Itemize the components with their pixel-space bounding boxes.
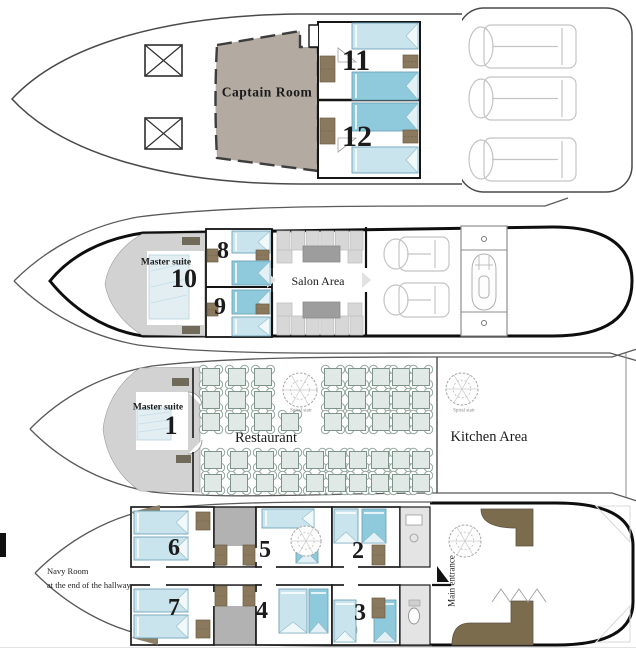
cabin-9-label: 9 bbox=[214, 295, 226, 319]
salon-seat bbox=[348, 303, 362, 316]
deck-hatch-icon bbox=[145, 118, 182, 149]
restaurant-table bbox=[201, 471, 224, 494]
table-top bbox=[229, 414, 246, 431]
bed bbox=[279, 589, 307, 633]
table-top bbox=[373, 392, 390, 409]
master-suite-upper-chip bbox=[182, 237, 200, 245]
salon-seat bbox=[350, 316, 363, 335]
table-top bbox=[349, 369, 366, 386]
table-top bbox=[373, 369, 390, 386]
table-top bbox=[203, 414, 220, 431]
table-top bbox=[393, 475, 410, 492]
cabin-block-step bbox=[309, 25, 318, 47]
restaurant-table bbox=[303, 448, 326, 471]
cabin-12-label: 12 bbox=[342, 122, 372, 152]
restaurant-table bbox=[345, 410, 368, 433]
salon-seat bbox=[306, 316, 319, 335]
captain-room-label: Captain Room bbox=[222, 85, 312, 99]
table-top bbox=[282, 452, 299, 469]
table-top bbox=[257, 475, 274, 492]
salon-table bbox=[303, 246, 340, 262]
cabin-1-label: 1 bbox=[165, 413, 178, 439]
table-top bbox=[255, 414, 272, 431]
restaurant-table bbox=[201, 448, 224, 471]
restaurant-table bbox=[253, 448, 276, 471]
cabin-2-label: 2 bbox=[352, 539, 364, 563]
master-suite-upper-chip bbox=[182, 326, 200, 334]
restaurant-table bbox=[225, 365, 248, 388]
restaurant-table bbox=[225, 388, 248, 411]
cabin-8-label: 8 bbox=[217, 239, 229, 263]
restaurant-table bbox=[227, 471, 250, 494]
yacht-deck-plan: Captain Room 11 12 Master suite 10 8 9 S… bbox=[0, 0, 636, 648]
table-top bbox=[205, 475, 222, 492]
cabin-3-label: 3 bbox=[354, 601, 366, 625]
bow-marker bbox=[0, 533, 6, 557]
table-top bbox=[350, 452, 367, 469]
restaurant-table bbox=[346, 471, 369, 494]
restaurant-table bbox=[409, 365, 432, 388]
table-top bbox=[255, 369, 272, 386]
bed bbox=[262, 509, 314, 528]
restaurant-table bbox=[345, 388, 368, 411]
spiral-stair-icon bbox=[449, 525, 481, 557]
salon-seat bbox=[350, 231, 363, 250]
table-top bbox=[325, 414, 342, 431]
table-top bbox=[350, 475, 367, 492]
cabin-4-label: 4 bbox=[256, 599, 268, 623]
restaurant-table bbox=[409, 471, 432, 494]
salon-table bbox=[303, 302, 340, 318]
table-top bbox=[203, 392, 220, 409]
table-top bbox=[413, 475, 430, 492]
cabin-7-label: 7 bbox=[168, 596, 180, 620]
master-suite-main-chip bbox=[172, 378, 189, 386]
bed bbox=[362, 509, 386, 543]
table-top bbox=[325, 369, 342, 386]
salon-seat bbox=[348, 250, 362, 263]
table-top bbox=[329, 475, 346, 492]
navy-room-label-line1: Navy Room bbox=[47, 567, 88, 576]
restaurant-table bbox=[325, 471, 348, 494]
navy-room-label-line2: at the end of the hallway bbox=[47, 581, 131, 590]
table-top bbox=[231, 475, 248, 492]
table-top bbox=[282, 475, 299, 492]
salon-seat bbox=[277, 303, 292, 316]
spiral-stair-right-label: Spiral stair bbox=[453, 409, 475, 414]
table-top bbox=[325, 392, 342, 409]
table-top bbox=[372, 452, 389, 469]
salon-seat bbox=[277, 316, 290, 335]
table-top bbox=[373, 414, 390, 431]
sink bbox=[406, 515, 422, 525]
table-top bbox=[413, 414, 430, 431]
bed bbox=[309, 589, 328, 633]
restaurant-table bbox=[303, 471, 326, 494]
restaurant-table bbox=[368, 471, 391, 494]
restaurant-table bbox=[321, 388, 344, 411]
table-top bbox=[231, 452, 248, 469]
restaurant-table bbox=[199, 388, 222, 411]
restaurant-table bbox=[346, 448, 369, 471]
restaurant-table bbox=[409, 448, 432, 471]
sun-deck bbox=[12, 8, 632, 192]
main-deck bbox=[30, 349, 636, 501]
table-top bbox=[393, 452, 410, 469]
table-top bbox=[349, 392, 366, 409]
spiral-stair-left-label: Spiral stair bbox=[290, 409, 312, 414]
table-top bbox=[413, 392, 430, 409]
table-top bbox=[413, 452, 430, 469]
bed bbox=[232, 261, 270, 285]
main-entrance-label: Main entrance bbox=[448, 555, 457, 607]
restaurant-table bbox=[199, 365, 222, 388]
bed bbox=[134, 511, 188, 534]
table-top bbox=[257, 452, 274, 469]
table-top bbox=[393, 392, 410, 409]
bed bbox=[232, 317, 270, 336]
kitchen-area-label: Kitchen Area bbox=[451, 430, 528, 445]
restaurant-table bbox=[345, 365, 368, 388]
restaurant-table bbox=[227, 448, 250, 471]
table-top bbox=[255, 392, 272, 409]
restaurant-table bbox=[251, 388, 274, 411]
restaurant-table bbox=[253, 471, 276, 494]
cabin-5-label: 5 bbox=[259, 538, 271, 562]
table-top bbox=[329, 452, 346, 469]
restaurant-table bbox=[409, 410, 432, 433]
restaurant-table bbox=[321, 410, 344, 433]
jetski-icon bbox=[472, 254, 496, 310]
table-top bbox=[282, 414, 299, 431]
salon-seat bbox=[335, 316, 348, 335]
bed bbox=[334, 600, 356, 642]
cabin-11-label: 11 bbox=[342, 46, 370, 76]
salon-area-label: Salon Area bbox=[292, 275, 345, 287]
master-suite-main-chip bbox=[176, 455, 191, 463]
deck-hatch-icon bbox=[145, 45, 182, 76]
restaurant-table bbox=[278, 448, 301, 471]
table-top bbox=[413, 369, 430, 386]
table-top bbox=[372, 475, 389, 492]
captain-room-area bbox=[216, 31, 319, 171]
table-top bbox=[229, 369, 246, 386]
toilet-icon bbox=[409, 608, 420, 624]
cabin-6-label: 6 bbox=[168, 536, 180, 560]
table-top bbox=[393, 414, 410, 431]
table-top bbox=[229, 392, 246, 409]
salon-seat bbox=[321, 316, 334, 335]
salon-seat bbox=[277, 231, 290, 250]
spiral-stair-icon bbox=[446, 373, 478, 405]
table-top bbox=[205, 452, 222, 469]
spiral-stair-icon bbox=[283, 373, 317, 407]
restaurant-label: Restaurant bbox=[235, 431, 297, 446]
cabin-10-label: 10 bbox=[171, 266, 197, 292]
table-top bbox=[307, 475, 324, 492]
restaurant-table bbox=[325, 448, 348, 471]
salon-seat bbox=[292, 316, 305, 335]
salon-seat bbox=[277, 250, 292, 263]
toilet-tank bbox=[409, 600, 420, 606]
spiral-stair-icon bbox=[291, 526, 321, 556]
restaurant-table bbox=[409, 388, 432, 411]
table-top bbox=[307, 452, 324, 469]
table-top bbox=[349, 414, 366, 431]
table-top bbox=[393, 369, 410, 386]
restaurant-table bbox=[199, 410, 222, 433]
table-top bbox=[203, 369, 220, 386]
restaurant-table bbox=[321, 365, 344, 388]
restaurant-table bbox=[368, 448, 391, 471]
restaurant-table bbox=[251, 365, 274, 388]
restaurant-table bbox=[278, 471, 301, 494]
